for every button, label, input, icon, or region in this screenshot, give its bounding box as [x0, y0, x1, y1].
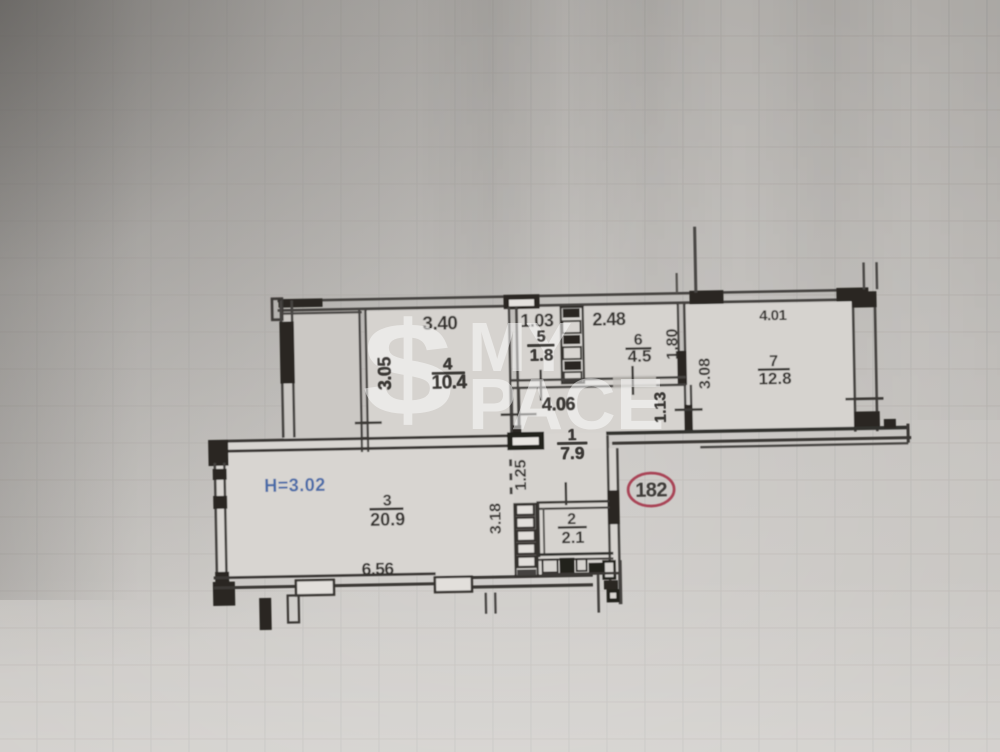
- svg-text:7.9: 7.9: [560, 443, 585, 463]
- svg-text:2.1: 2.1: [561, 529, 584, 547]
- svg-text:H=3.02: H=3.02: [264, 475, 326, 496]
- svg-text:4.06: 4.06: [542, 394, 576, 415]
- svg-text:12.8: 12.8: [758, 369, 791, 389]
- svg-text:3.05: 3.05: [375, 356, 396, 390]
- svg-text:4.01: 4.01: [759, 307, 787, 325]
- svg-text:6.56: 6.56: [361, 559, 394, 580]
- svg-text:2: 2: [567, 511, 576, 528]
- svg-text:5: 5: [537, 329, 546, 346]
- svg-text:20.9: 20.9: [370, 509, 405, 530]
- svg-text:1.25: 1.25: [513, 459, 531, 491]
- svg-text:1.80: 1.80: [664, 328, 682, 360]
- svg-text:3: 3: [383, 493, 392, 510]
- svg-text:4.5: 4.5: [628, 347, 652, 366]
- svg-text:1.13: 1.13: [652, 392, 670, 424]
- svg-text:1.8: 1.8: [530, 345, 554, 364]
- svg-text:10.4: 10.4: [431, 372, 467, 394]
- svg-text:3.18: 3.18: [487, 503, 505, 535]
- svg-text:4: 4: [443, 354, 453, 373]
- svg-text:182: 182: [635, 479, 668, 502]
- svg-text:7: 7: [769, 353, 778, 370]
- svg-text:1: 1: [567, 427, 576, 444]
- svg-text:2.48: 2.48: [592, 309, 626, 330]
- svg-text:3.08: 3.08: [697, 358, 715, 390]
